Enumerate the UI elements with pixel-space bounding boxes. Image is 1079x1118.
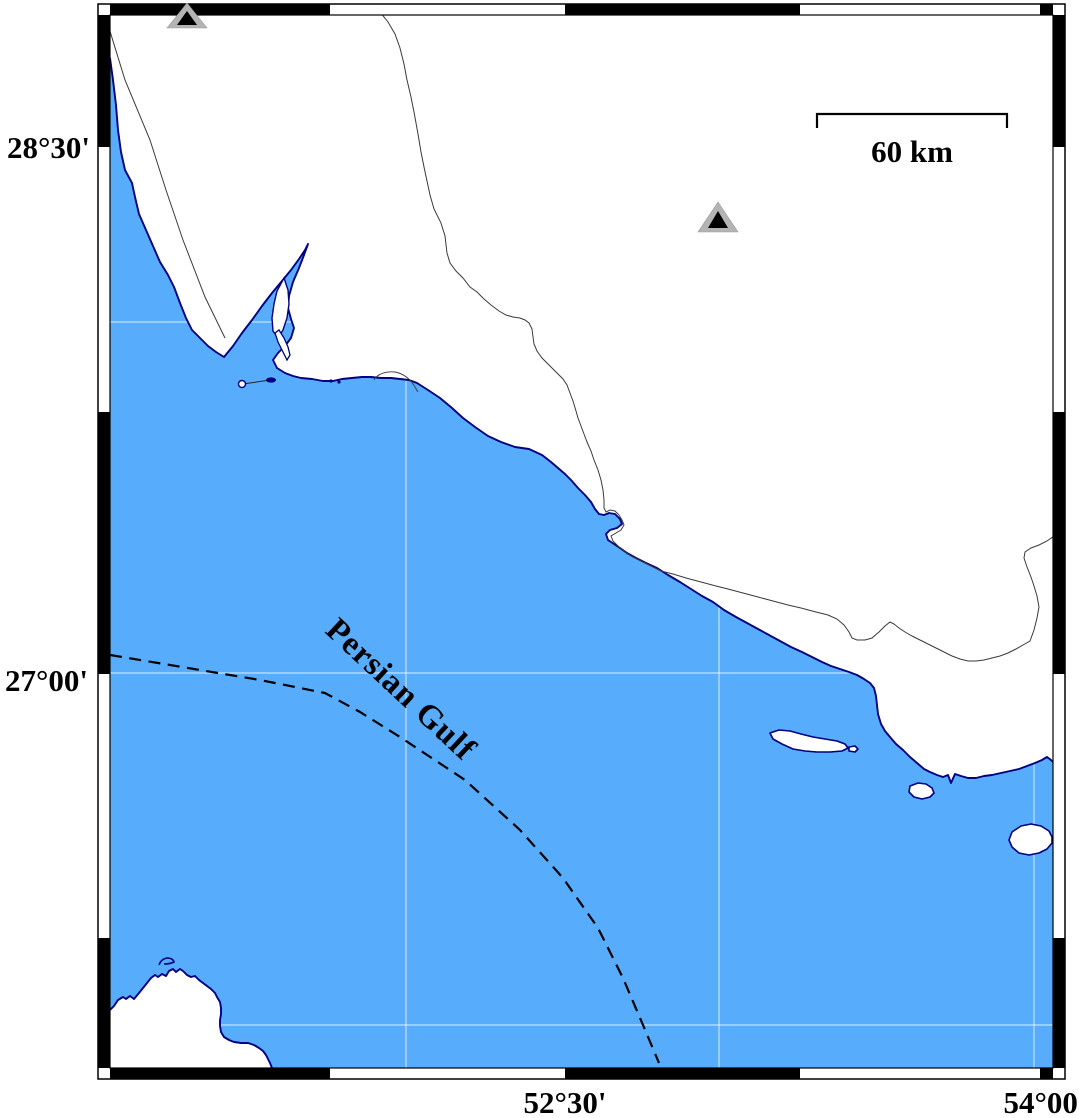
y-axis-label: 28°30' xyxy=(7,130,90,165)
island-tiny xyxy=(849,746,858,752)
map-interior: Persian Gulf xyxy=(109,12,1066,1068)
map-figure: Persian Gulf xyxy=(0,0,1079,1118)
map-canvas: Persian Gulf xyxy=(0,0,1079,1118)
y-axis-label: 27°00' xyxy=(5,663,88,698)
x-axis-label: 52°30' xyxy=(523,1085,606,1118)
scale-bar-label: 60 km xyxy=(871,134,953,169)
x-axis-label: 54°00' xyxy=(1003,1085,1079,1118)
